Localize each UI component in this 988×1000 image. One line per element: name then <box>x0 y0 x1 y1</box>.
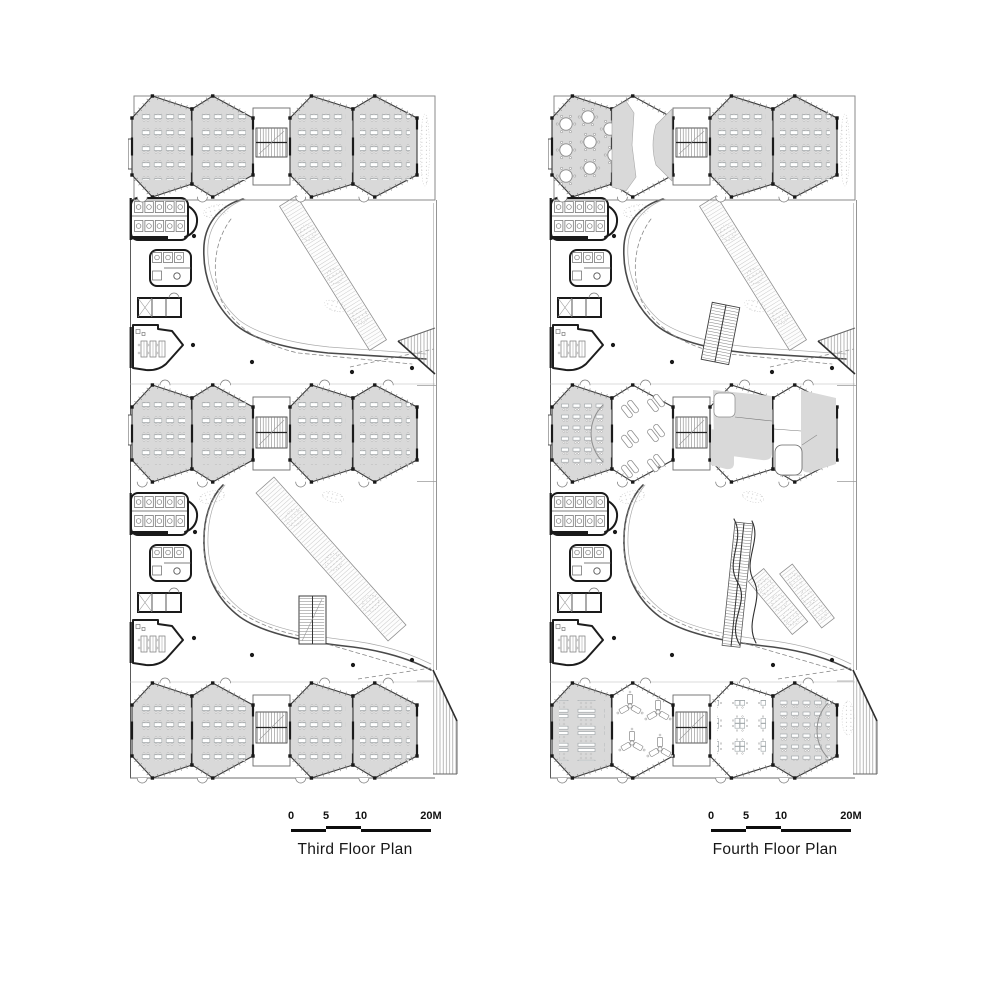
fourth-floor-plan <box>548 93 884 787</box>
third-floor-scale-bar: 0 5 10 20M <box>291 810 433 836</box>
scale-bar-segment <box>711 829 746 832</box>
third-floor-caption: Third Floor Plan <box>250 841 460 859</box>
fourth-floor-plan-drawing <box>548 93 884 787</box>
scale-label-10: 10 <box>355 810 367 822</box>
third-floor-plan <box>128 93 464 787</box>
scale-bar-segment <box>291 829 326 832</box>
scale-bar-segment <box>361 829 431 832</box>
scale-label-20m: 20M <box>420 810 441 822</box>
scale-label-10: 10 <box>775 810 787 822</box>
fourth-floor-scale-bar: 0 5 10 20M <box>711 810 853 836</box>
scale-bar-segment <box>746 826 781 829</box>
scale-bar-segment <box>781 829 851 832</box>
architectural-sheet: 0 5 10 20M Third Floor Plan 0 5 10 20M F… <box>0 0 988 1000</box>
scale-label-0: 0 <box>288 810 294 822</box>
scale-label-20m: 20M <box>840 810 861 822</box>
third-floor-plan-drawing <box>128 93 464 787</box>
scale-bar-segment <box>326 826 361 829</box>
scale-label-0: 0 <box>708 810 714 822</box>
scale-label-5: 5 <box>323 810 329 822</box>
fourth-floor-caption: Fourth Floor Plan <box>670 841 880 859</box>
scale-label-5: 5 <box>743 810 749 822</box>
